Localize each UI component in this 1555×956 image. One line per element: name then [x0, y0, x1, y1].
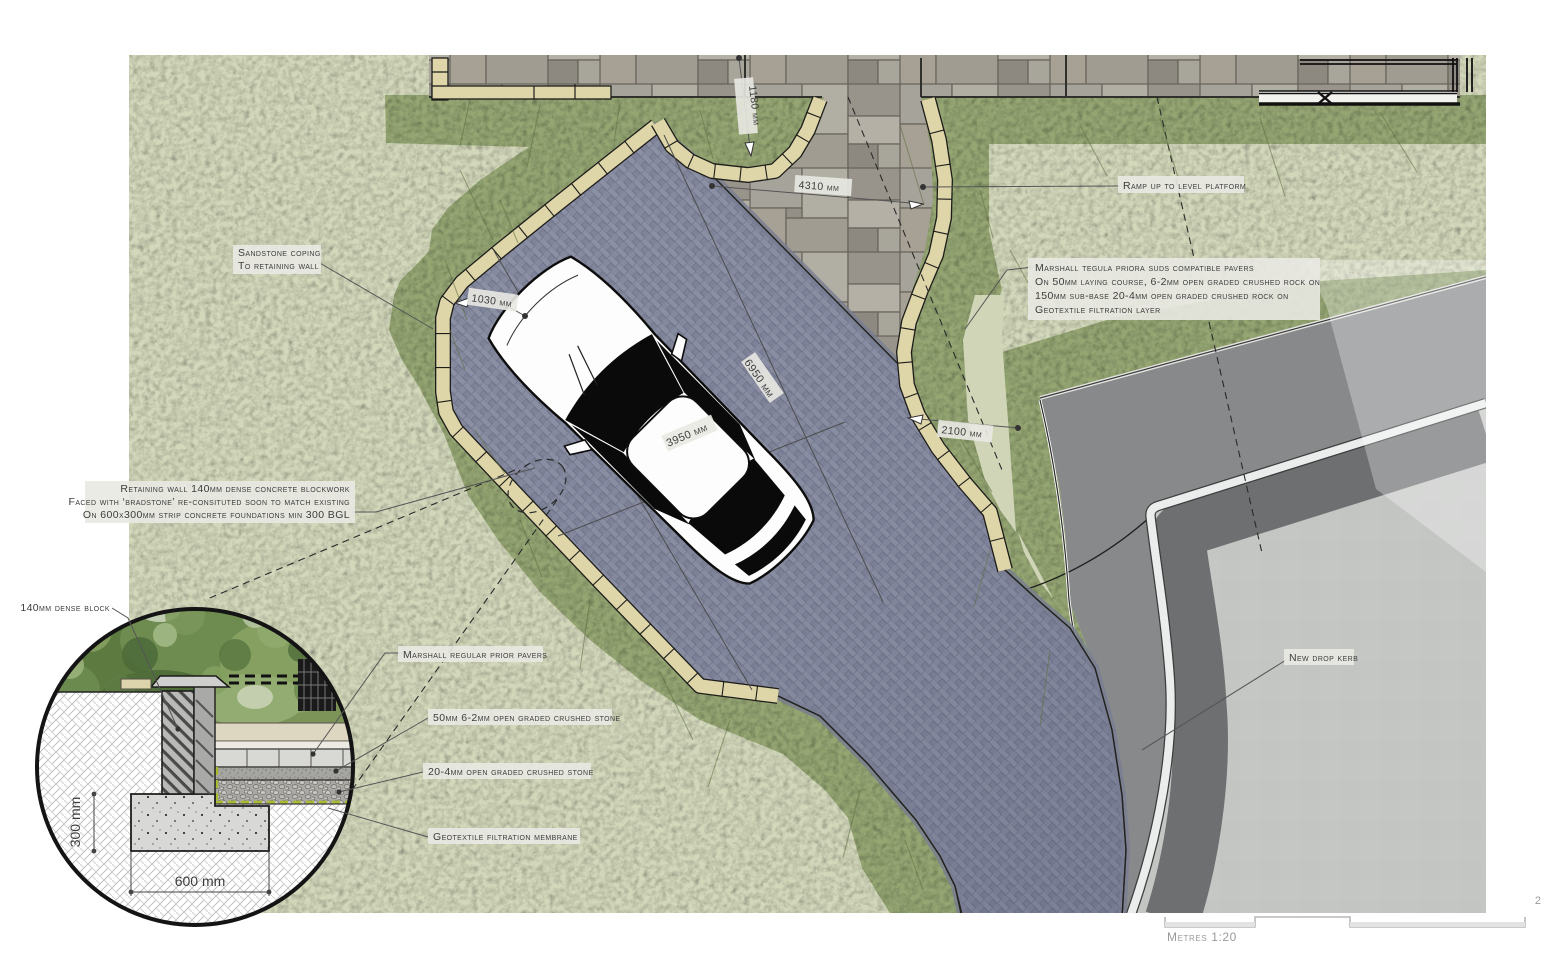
svg-text:Geotextile filtration membran: Geotextile filtration membrane [433, 831, 578, 843]
svg-text:Marshall regular prior pavers: Marshall regular prior pavers [403, 649, 547, 661]
svg-text:Faced with ‘bradstone’ re-cons: Faced with ‘bradstone’ re-consituted soo… [69, 496, 350, 508]
svg-text:Marshall tegula priora suds co: Marshall tegula priora suds compatible p… [1035, 262, 1254, 274]
svg-text:Sandstone coping: Sandstone coping [238, 247, 321, 259]
svg-text:300 mm: 300 mm [67, 797, 83, 848]
svg-text:Geotextile filtration layer: Geotextile filtration layer [1035, 304, 1161, 316]
svg-text:Metres 1:20: Metres 1:20 [1167, 930, 1237, 944]
svg-text:2: 2 [1535, 895, 1541, 907]
svg-text:To retaining wall: To retaining wall [238, 260, 319, 272]
svg-text:140mm dense block: 140mm dense block [20, 602, 110, 614]
svg-text:Retaining wall 140mm dense con: Retaining wall 140mm dense concrete bloc… [120, 483, 350, 495]
svg-text:New drop kerb: New drop kerb [1289, 652, 1358, 664]
svg-text:50mm 6-2mm open graded crushed: 50mm 6-2mm open graded crushed stone [433, 712, 621, 724]
svg-text:600 mm: 600 mm [175, 873, 226, 889]
svg-text:Ramp up to level platform: Ramp up to level platform [1123, 180, 1246, 192]
svg-text:On 50mm laying course, 6-2mm o: On 50mm laying course, 6-2mm open graded… [1035, 276, 1320, 288]
svg-text:20-4mm open graded crushed sto: 20-4mm open graded crushed stone [428, 766, 594, 778]
svg-text:On 600x300mm strip concrete fo: On 600x300mm strip concrete foundations … [83, 509, 350, 521]
svg-text:150mm sub-base 20-4mm open gra: 150mm sub-base 20-4mm open graded crushe… [1035, 290, 1289, 302]
